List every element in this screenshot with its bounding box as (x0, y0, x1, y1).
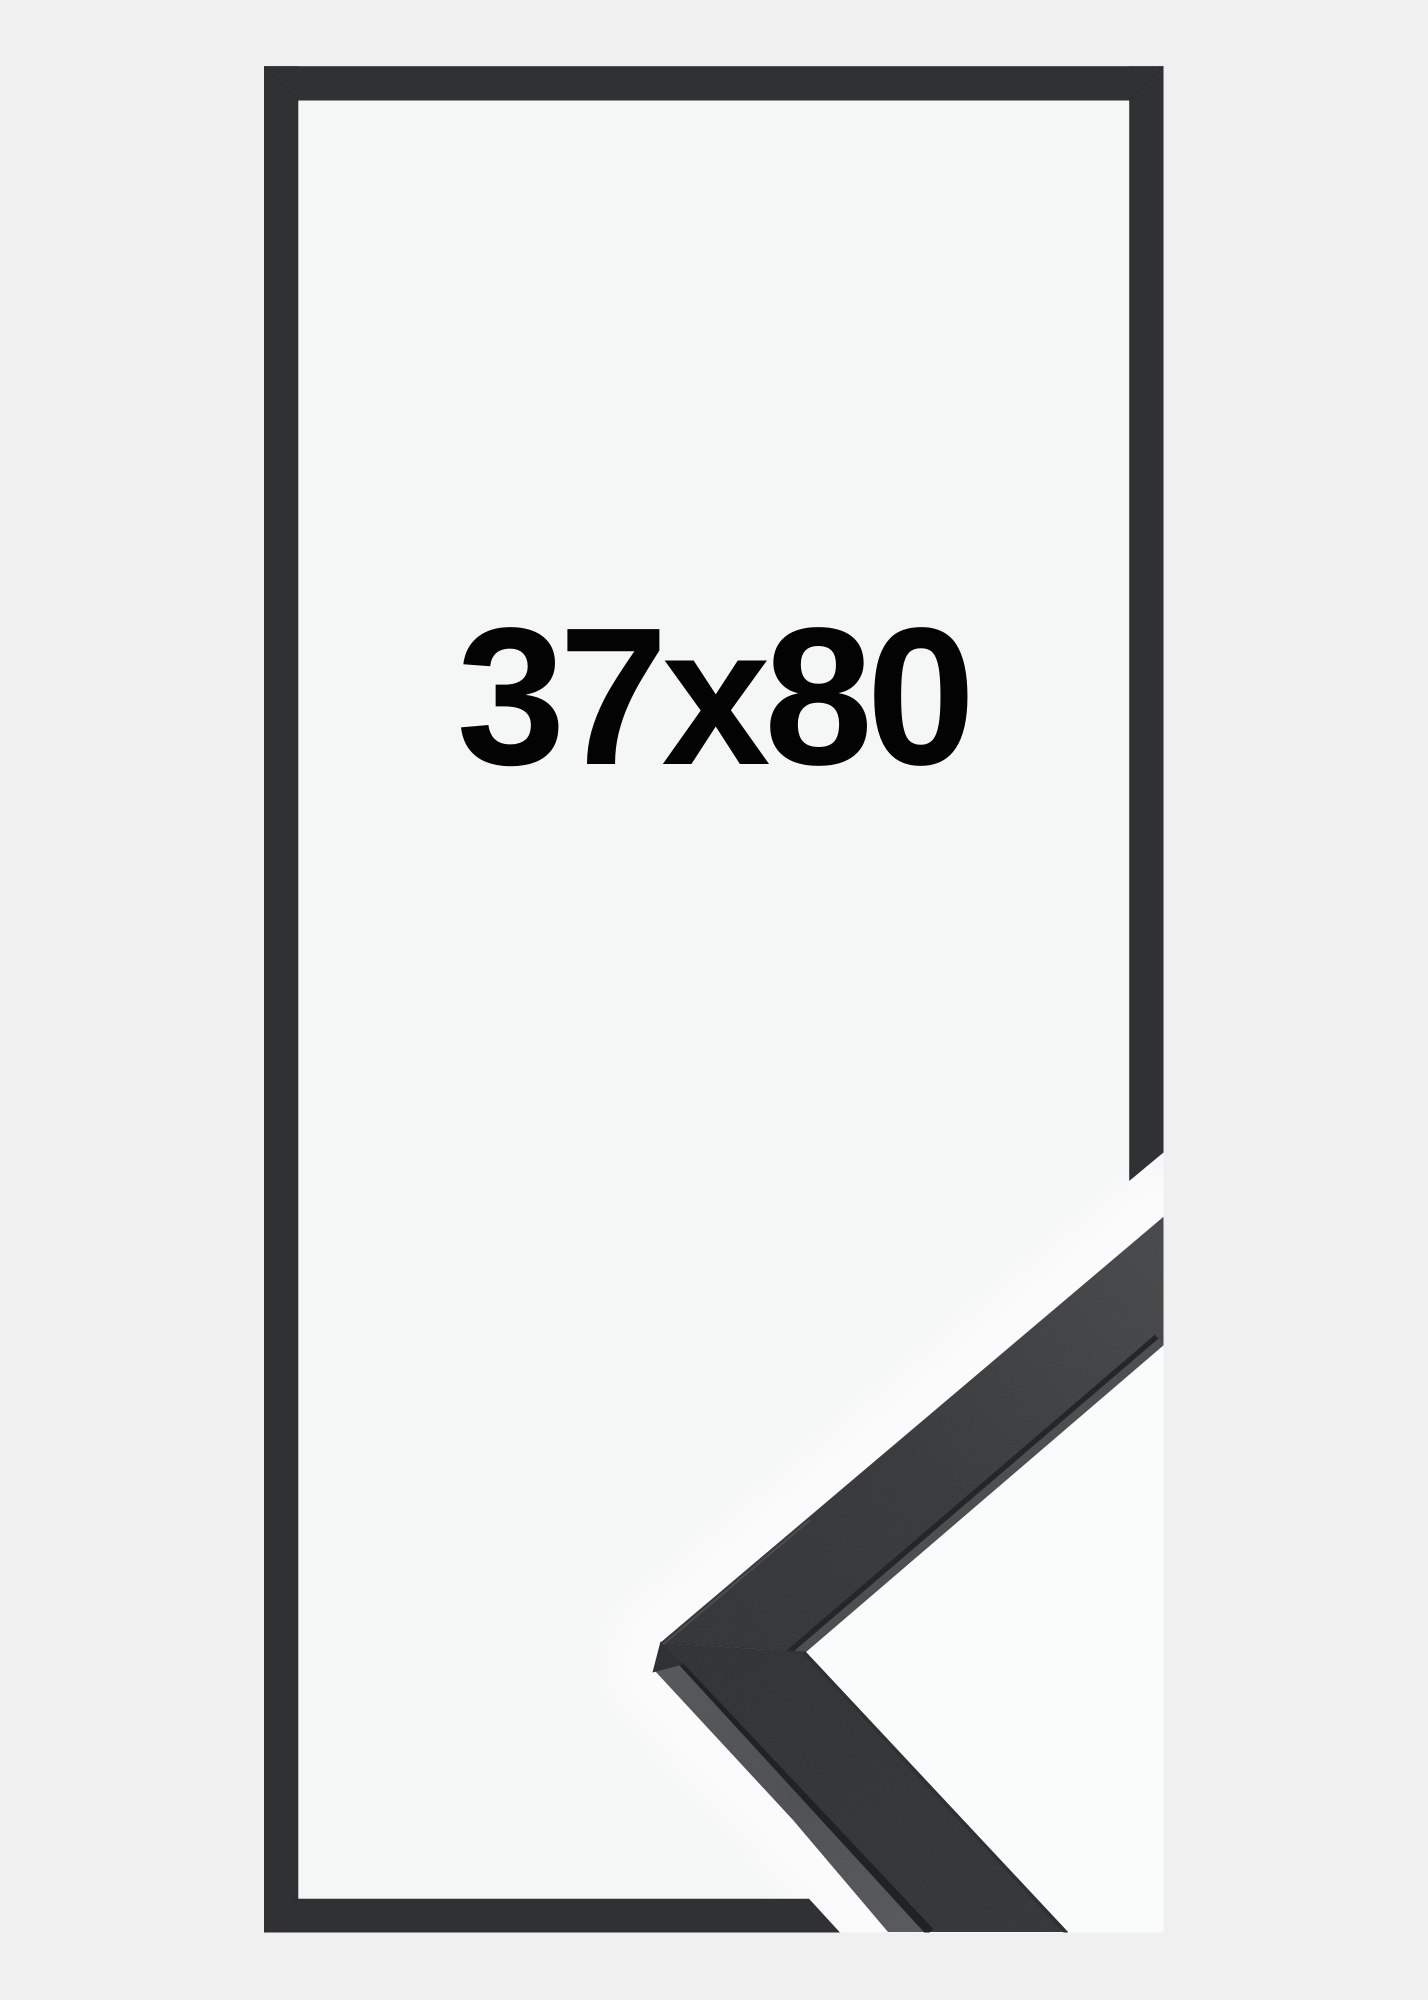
svg-text:37x80: 37x80 (457, 587, 976, 806)
